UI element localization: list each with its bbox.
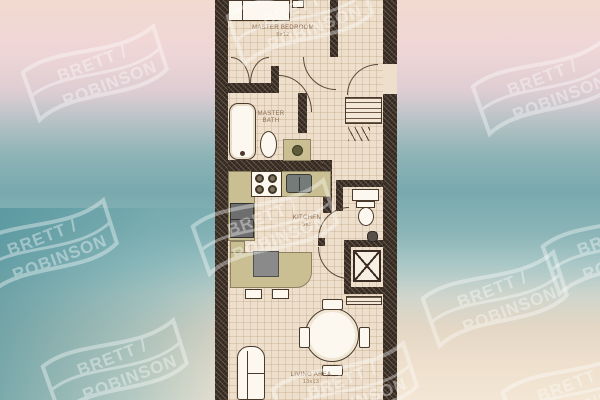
dining-table (305, 308, 359, 362)
wall-closet-stub (271, 66, 279, 93)
burner-icon (268, 174, 277, 183)
master-bath-label-2: BATH (246, 118, 296, 125)
living-area-dims: 13x13 (281, 379, 341, 386)
pillow-divider (242, 1, 243, 20)
wall-mech-top (344, 240, 383, 247)
fridge-divider (231, 219, 253, 220)
mech-shelf-band (346, 296, 382, 305)
dining-chair (322, 299, 343, 310)
bar-stool (245, 289, 262, 299)
bed (228, 0, 290, 21)
entry-opening (383, 64, 397, 94)
dining-chair (299, 327, 310, 348)
peninsula-sink (253, 251, 279, 277)
room-label-master-bedroom: MASTER BEDROOM 9x12 (233, 25, 333, 39)
stove (251, 171, 282, 197)
kitchen-sink (286, 174, 312, 193)
wall-wc-top (336, 180, 383, 187)
burner-icon (255, 185, 264, 194)
dining-chair (359, 327, 370, 348)
bath-sink (260, 131, 277, 158)
tub-faucet-icon (240, 151, 245, 156)
room-label-master-bath: MASTER BATH (246, 111, 296, 125)
bath-door-arc (279, 75, 312, 112)
wall-pier (318, 238, 325, 246)
water-heater-icon (367, 231, 378, 242)
sofa-cushion-seam (247, 373, 264, 374)
bar-stool (272, 289, 289, 299)
master-bedroom-label: MASTER BEDROOM (233, 25, 333, 32)
wall-bath-kitchen (228, 160, 331, 171)
bedroom-door-arc (303, 57, 336, 90)
entry-door-arc (347, 64, 378, 95)
wall-left (215, 0, 228, 400)
sink-divider (299, 177, 300, 191)
living-area-label: LIVING AREA (281, 372, 341, 379)
burner-icon (255, 174, 264, 183)
bath-vanity (283, 139, 311, 161)
wall-right (383, 0, 397, 400)
burner-icon (268, 185, 277, 194)
vessel-sink-icon (292, 145, 303, 156)
toilet-bowl (358, 207, 374, 226)
screenshot: MASTER BEDROOM 9x12 MASTER BATH (0, 0, 600, 400)
mechanical-closet-x (353, 250, 381, 282)
closet-shelves (345, 97, 382, 124)
refrigerator (230, 203, 254, 238)
wc-vanity (352, 189, 379, 201)
wall-mech-bottom (344, 287, 383, 294)
master-bedroom-dims: 9x12 (233, 32, 333, 39)
room-label-living-area: LIVING AREA 13x13 (281, 372, 341, 386)
luggage-rack (348, 127, 370, 141)
sofa (237, 346, 265, 400)
floor-plan: MASTER BEDROOM 9x12 MASTER BATH (215, 0, 397, 400)
master-bath-label-1: MASTER (246, 111, 296, 118)
closet-door-arc-left (231, 57, 250, 83)
sofa-back-seam (247, 351, 248, 399)
closet-door-arc-right (250, 57, 269, 83)
nightstand (292, 0, 304, 8)
hall-door-arc (318, 247, 349, 279)
